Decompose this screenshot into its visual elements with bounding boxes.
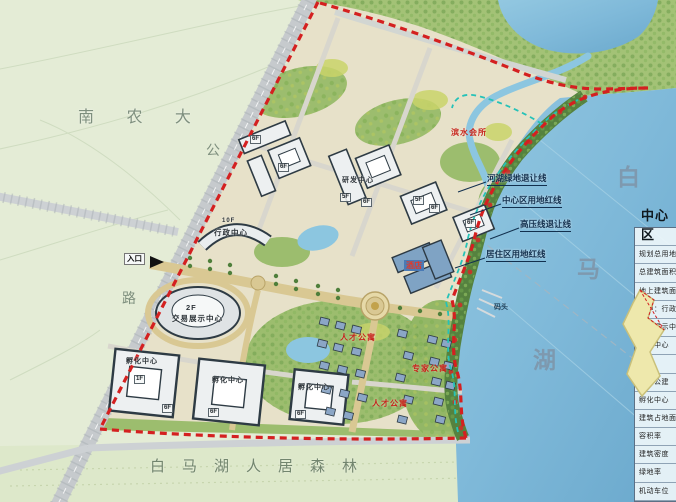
campus-label: 南 农 大 [78,103,205,127]
red-label-clubhouse: 滨水会所 [451,127,487,138]
floor-tag: 6F [429,204,440,213]
legend-row: 绿地率 [635,464,676,482]
exhibition-floor-label: 2F [186,303,197,312]
map-graphic [0,0,676,502]
lake-name-char-3: 湖 [533,341,556,375]
road-name-char-1: 公 [206,140,220,160]
legend-row: 规划总用地 [635,246,676,264]
incubator-label-2: 孵化中心 [212,375,244,385]
floor-tag: 6F [278,163,289,172]
entrance-label: 入口 [124,253,145,265]
floor-tag: 6F [295,410,306,419]
incubator-label-3: 孵化中心 [298,382,330,392]
legend-row: 机动车位 [635,483,676,501]
setback-label-river: 河湖绿地退让线 [487,172,547,186]
legend-row: 容积率 [635,428,676,446]
keymap-silhouette [618,288,676,404]
red-label-expert-apartment: 专家公寓 [412,363,448,374]
exhibition-label: 交易展示中心 [172,313,223,324]
legend-row: 建筑占地面积 [635,410,676,428]
floor-tag: 6F [208,408,219,417]
legend-row: 总建筑面积 [635,264,676,282]
setback-label-center-redline: 中心区用地红线 [502,194,562,208]
floor-tag: 6F [465,219,476,228]
dock-label: 码头 [494,302,508,312]
legend-title: 中心区 [641,205,676,243]
red-label-talent-apartment-1: 人才公寓 [340,332,376,343]
admin-label: 行政中心 [214,227,248,238]
rd-center-label: 研发中心 [342,175,374,185]
red-label-talent-apartment-2: 人才公寓 [372,398,408,409]
floor-tag: 5F [413,196,424,205]
floor-tag: 6F [250,135,261,144]
setback-label-residential: 居住区用地红线 [486,248,546,262]
lake-name-char-1: 白 [617,158,640,192]
setback-label-hv: 高压线退让线 [520,218,571,232]
incubator-label-1: 孵化中心 [126,356,158,366]
floor-tag: 5F [340,193,351,202]
masterplan-map: 南 农 大 公 路 白马湖人居森林 白 马 湖 河湖绿地退让线 中心区用地红线 … [0,0,676,502]
road-name-char-2: 路 [122,288,136,308]
legend-row: 建筑密度 [635,446,676,464]
floor-tag: 1F [134,375,145,384]
forest-label: 白马湖人居森林 [150,455,374,476]
floor-tag: 6F [162,404,173,413]
floor-tag: 6F [361,198,372,207]
admin-floor-label: 10F [222,218,235,224]
lake-name-char-2: 马 [577,250,600,284]
hotel-label: 酒店 [404,260,424,271]
